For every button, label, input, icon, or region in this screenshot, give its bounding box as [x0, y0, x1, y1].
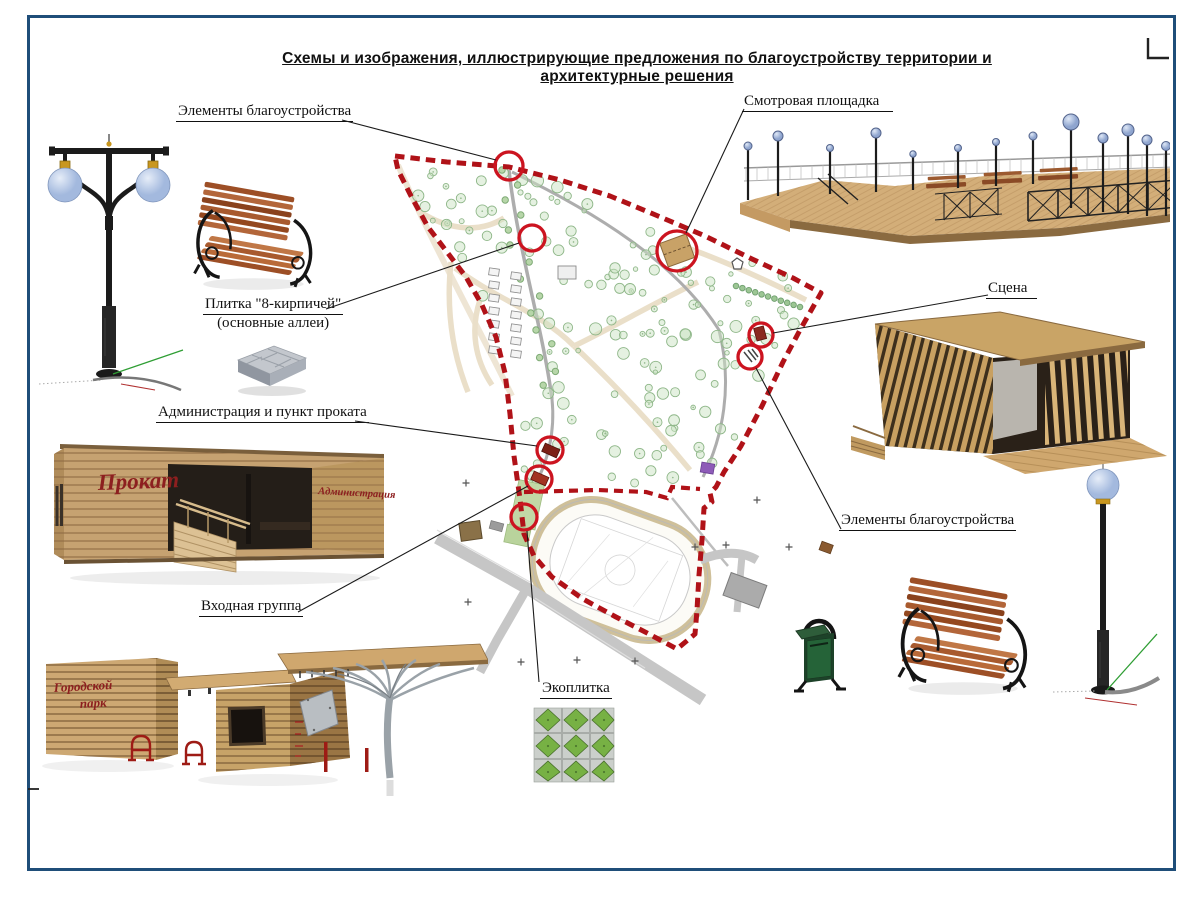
bench-render — [882, 556, 1042, 698]
viewing-platform-render — [730, 108, 1170, 268]
stage-render — [845, 298, 1170, 483]
map-playground — [489, 268, 522, 358]
callout-elements-top: Элементы благоустройства — [176, 103, 353, 122]
stage-back-wall — [993, 358, 1037, 440]
globe-lamp-render — [1045, 462, 1165, 714]
lamp-globe — [136, 168, 170, 202]
project-boundary-inner — [524, 487, 700, 498]
bench-render — [180, 160, 325, 295]
callout-elements-right: Элементы благоустройства — [839, 512, 1016, 531]
paving-slab-render — [228, 336, 312, 400]
lamp-globe — [48, 168, 82, 202]
lamp-globe — [1087, 469, 1119, 501]
sign-city-park-2: парк — [79, 695, 107, 711]
stage-steps — [851, 436, 885, 460]
presentation-sheet: Схемы и изображения, иллюстрирующие пред… — [0, 0, 1200, 900]
sheet-title: Схемы и изображения, иллюстрирующие пред… — [232, 50, 1042, 86]
sign-city-park-1: Городской — [52, 677, 112, 695]
sign-rental: Прокат — [96, 467, 179, 495]
kiosk-window — [229, 707, 264, 744]
callout-tile: Плитка "8-кирпичей" (основные аллеи) — [203, 296, 343, 333]
callout-administration: Администрация и пункт проката — [156, 404, 369, 423]
lamp-pole — [1100, 504, 1106, 632]
map-pavilion — [660, 234, 695, 267]
highlight-circle — [738, 345, 762, 369]
lamp-crossbar — [53, 148, 165, 154]
admin-building-render: Прокат Администрация — [50, 430, 395, 592]
double-globe-lamp-render — [33, 128, 188, 400]
highlight-circle — [519, 225, 545, 251]
callout-entrance-group: Входная группа — [199, 598, 303, 617]
trash-bin-render — [790, 605, 848, 697]
callout-stage: Сцена — [986, 280, 1037, 299]
eco-tile-render — [532, 704, 616, 784]
stage-interior-slats — [1045, 349, 1128, 445]
entrance-group-render: Городской парк — [38, 638, 488, 803]
